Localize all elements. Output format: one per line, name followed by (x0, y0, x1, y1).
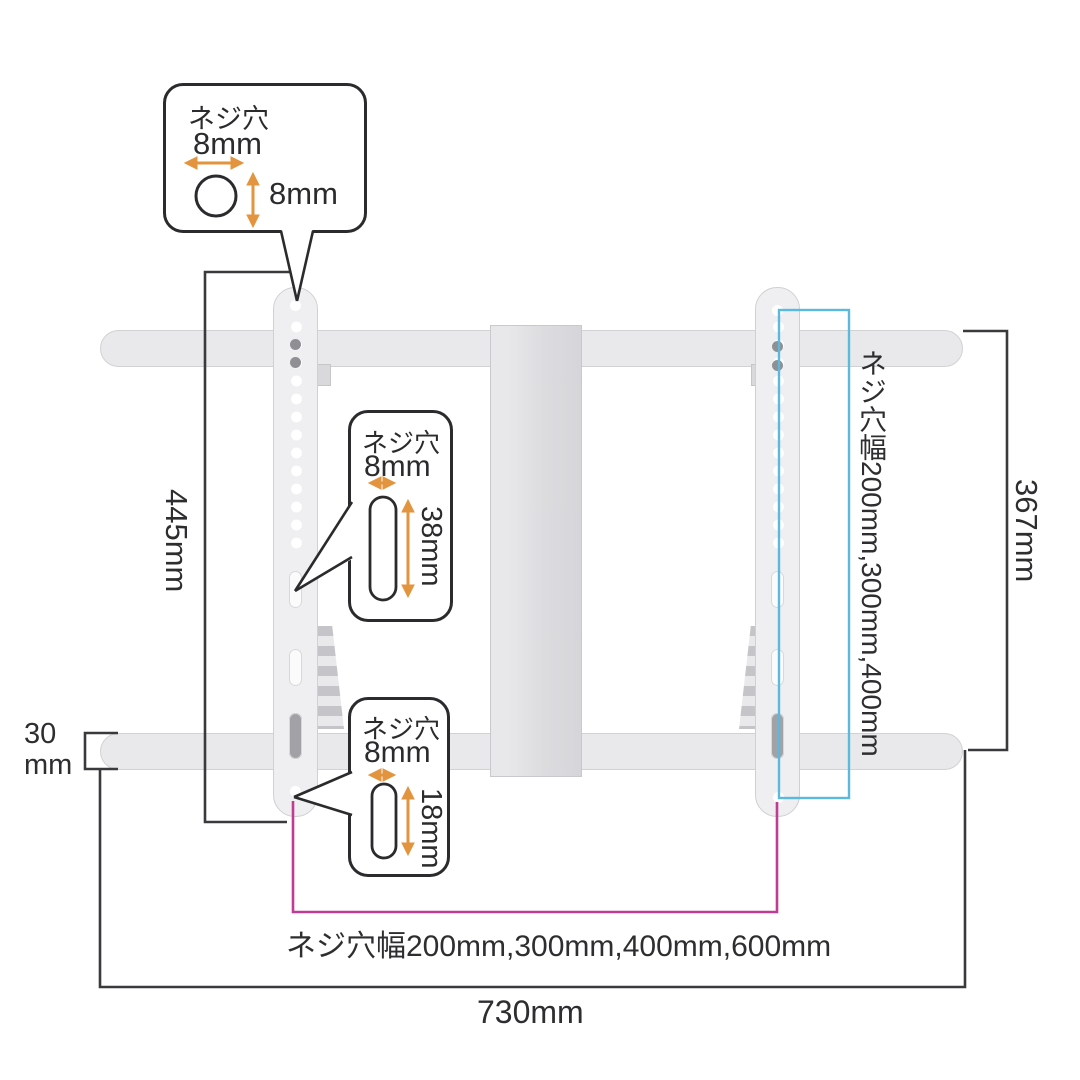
dim-right-height-label: 367mm (1008, 479, 1044, 582)
screw-hole-dark (290, 339, 301, 350)
screw-hole-bottom (773, 792, 784, 803)
dim-total-width-label: 730mm (477, 994, 584, 1031)
vesa-horizontal-pitch-label: ネジ穴幅200mm,300mm,400mm,600mm (286, 921, 831, 965)
callout-screw-slot-bottom: ネジ穴 8mm 18mm (348, 697, 450, 877)
screw-hole-dark (290, 357, 301, 368)
screw-hole (772, 305, 783, 316)
wall-mount-dimension-diagram: ネジ穴 8mm 8mm ネジ穴 8mm 38mm ネジ穴 8mm 18mm 44… (0, 0, 1080, 1080)
vesa-vertical-pitch-label: ネジ穴幅200mm,300mm,400mm (851, 349, 891, 757)
screw-hole-column (772, 318, 785, 552)
screw-slot (771, 571, 784, 608)
dim-367-line (963, 331, 1007, 750)
center-plate (490, 325, 582, 777)
right-vesa-bracket (755, 287, 800, 817)
slot-height-label: 38mm (414, 506, 447, 587)
callout-screw-hole-top: ネジ穴 8mm 8mm (163, 83, 367, 233)
screw-hole (290, 300, 301, 311)
rail-clamp-left (317, 364, 331, 386)
hole-height-label: 8mm (269, 176, 338, 212)
left-vesa-bracket (273, 287, 318, 817)
screw-slot (771, 649, 784, 686)
screw-hole-dark (772, 360, 783, 371)
screw-hole-column (290, 318, 303, 552)
screw-slot (289, 649, 302, 686)
slot-width-label: 8mm (364, 450, 431, 484)
hole-width-label: 8mm (193, 126, 262, 162)
dim-left-height-label: 445mm (158, 489, 194, 592)
screw-hole-dark (772, 341, 783, 352)
screw-slot-38 (289, 571, 302, 608)
slot-height-label: 18mm (414, 788, 447, 869)
dim-rail-thickness-label: 30 mm (24, 719, 72, 781)
screw-hole-bottom (290, 786, 301, 797)
screw-slot-rail (289, 713, 302, 759)
slot-width-label: 8mm (364, 736, 431, 770)
screw-slot-rail (771, 713, 784, 759)
callout-screw-slot-middle: ネジ穴 8mm 38mm (348, 410, 453, 622)
